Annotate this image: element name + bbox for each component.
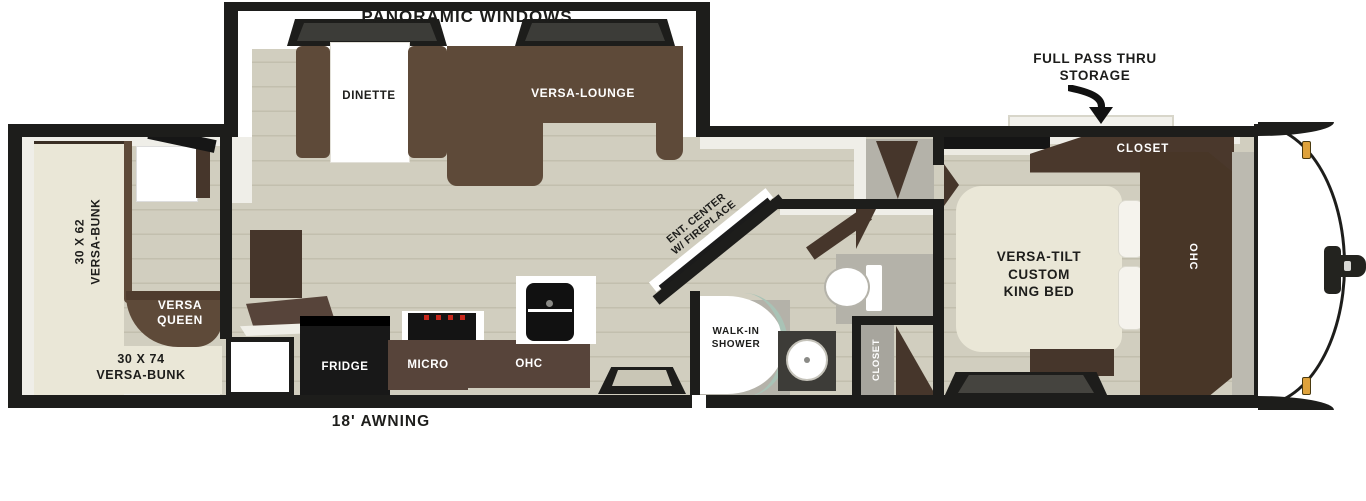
awning-label: 18' AWNING [301,412,461,431]
pantry-compartment [226,337,294,397]
bath-closet-label: CLOSET [871,325,883,395]
bunk-edge [124,141,132,303]
wall-bath-left [690,291,700,395]
fridge [300,316,390,396]
wall-bottom-left [8,395,692,408]
bunkroom-wardrobe-strip [196,146,210,198]
hall-door-lining [854,137,866,201]
faucet-icon [546,300,553,307]
burner-knob-icon [460,315,465,320]
marker-light-icon [1302,377,1311,395]
kitchen-wall-cabinet [250,230,302,298]
slideout-right-lining [682,11,696,137]
bedroom-ohc-label: OHC [1185,231,1199,283]
marker-light-icon [1302,141,1311,159]
fridge-label: FRIDGE [302,360,388,374]
bed-foot-bench [1030,349,1114,376]
wall-slideout-top [224,2,710,11]
versa-lounge-armrest [656,46,683,160]
floorplan-canvas: 30 X 62VERSA-BUNK VERSAQUEEN 30 X 74VERS… [0,0,1366,501]
wall-top-mid [696,126,1268,137]
wall-bath-top [772,199,944,209]
curved-down-arrow-icon [1068,85,1116,125]
sink-divider [528,309,572,312]
hitch-arm-icon [1338,255,1366,277]
pass-thru-storage-label: FULL PASS THRUSTORAGE [1013,51,1177,85]
wall-rear [8,124,22,408]
bath-faucet-icon [804,357,810,363]
slideout-left-lining [238,11,252,137]
hitch-latch [1344,261,1351,271]
front-cap-trim-bottom [1258,396,1334,410]
bunkroom-cabinet-top [136,146,198,202]
wall-bedroom-b [933,203,944,395]
front-cap-trim-top [1258,122,1334,136]
cooktop [408,313,476,340]
micro-label: MICRO [390,358,466,372]
wall-bottom-right [706,395,1268,408]
walk-in-shower-label: WALK-INSHOWER [702,326,770,351]
bunkroom-door-lining [232,137,252,203]
dinette-label: DINETTE [332,89,406,103]
wall-slideout-right [696,2,710,137]
wall-top-left [8,124,238,137]
bunk-30x74-label: 30 X 74VERSA-BUNK [61,352,221,383]
entry-step-tread [612,370,672,386]
kitchen-sink [526,283,574,341]
bedroom-dresser [944,135,1050,149]
versa-lounge-label: VERSA-LOUNGE [500,86,666,101]
dinette-bench-left [296,46,330,158]
wall-bunkroom [220,137,232,339]
wall-closet-top [852,316,944,325]
bedroom-window-glass [958,375,1094,393]
bunk-30x62-label: 30 X 62VERSA-BUNK [72,182,103,302]
burner-knob-icon [424,315,429,320]
burner-knob-icon [436,315,441,320]
kitchen-ohc-label: OHC [486,357,572,371]
hall-top-lining [700,137,856,149]
king-bed-label: VERSA-TILTCUSTOMKING BED [962,248,1116,301]
dinette-bench-right [408,46,447,158]
toilet-bowl [824,266,870,308]
wall-closet-left [852,316,861,402]
wall-bedroom-a [933,137,944,165]
versa-queen-label: VERSAQUEEN [138,298,222,328]
versa-lounge-chaise [447,46,543,186]
bedroom-right-lining [1232,152,1254,395]
wall-slideout-left [224,2,238,137]
burner-knob-icon [448,315,453,320]
